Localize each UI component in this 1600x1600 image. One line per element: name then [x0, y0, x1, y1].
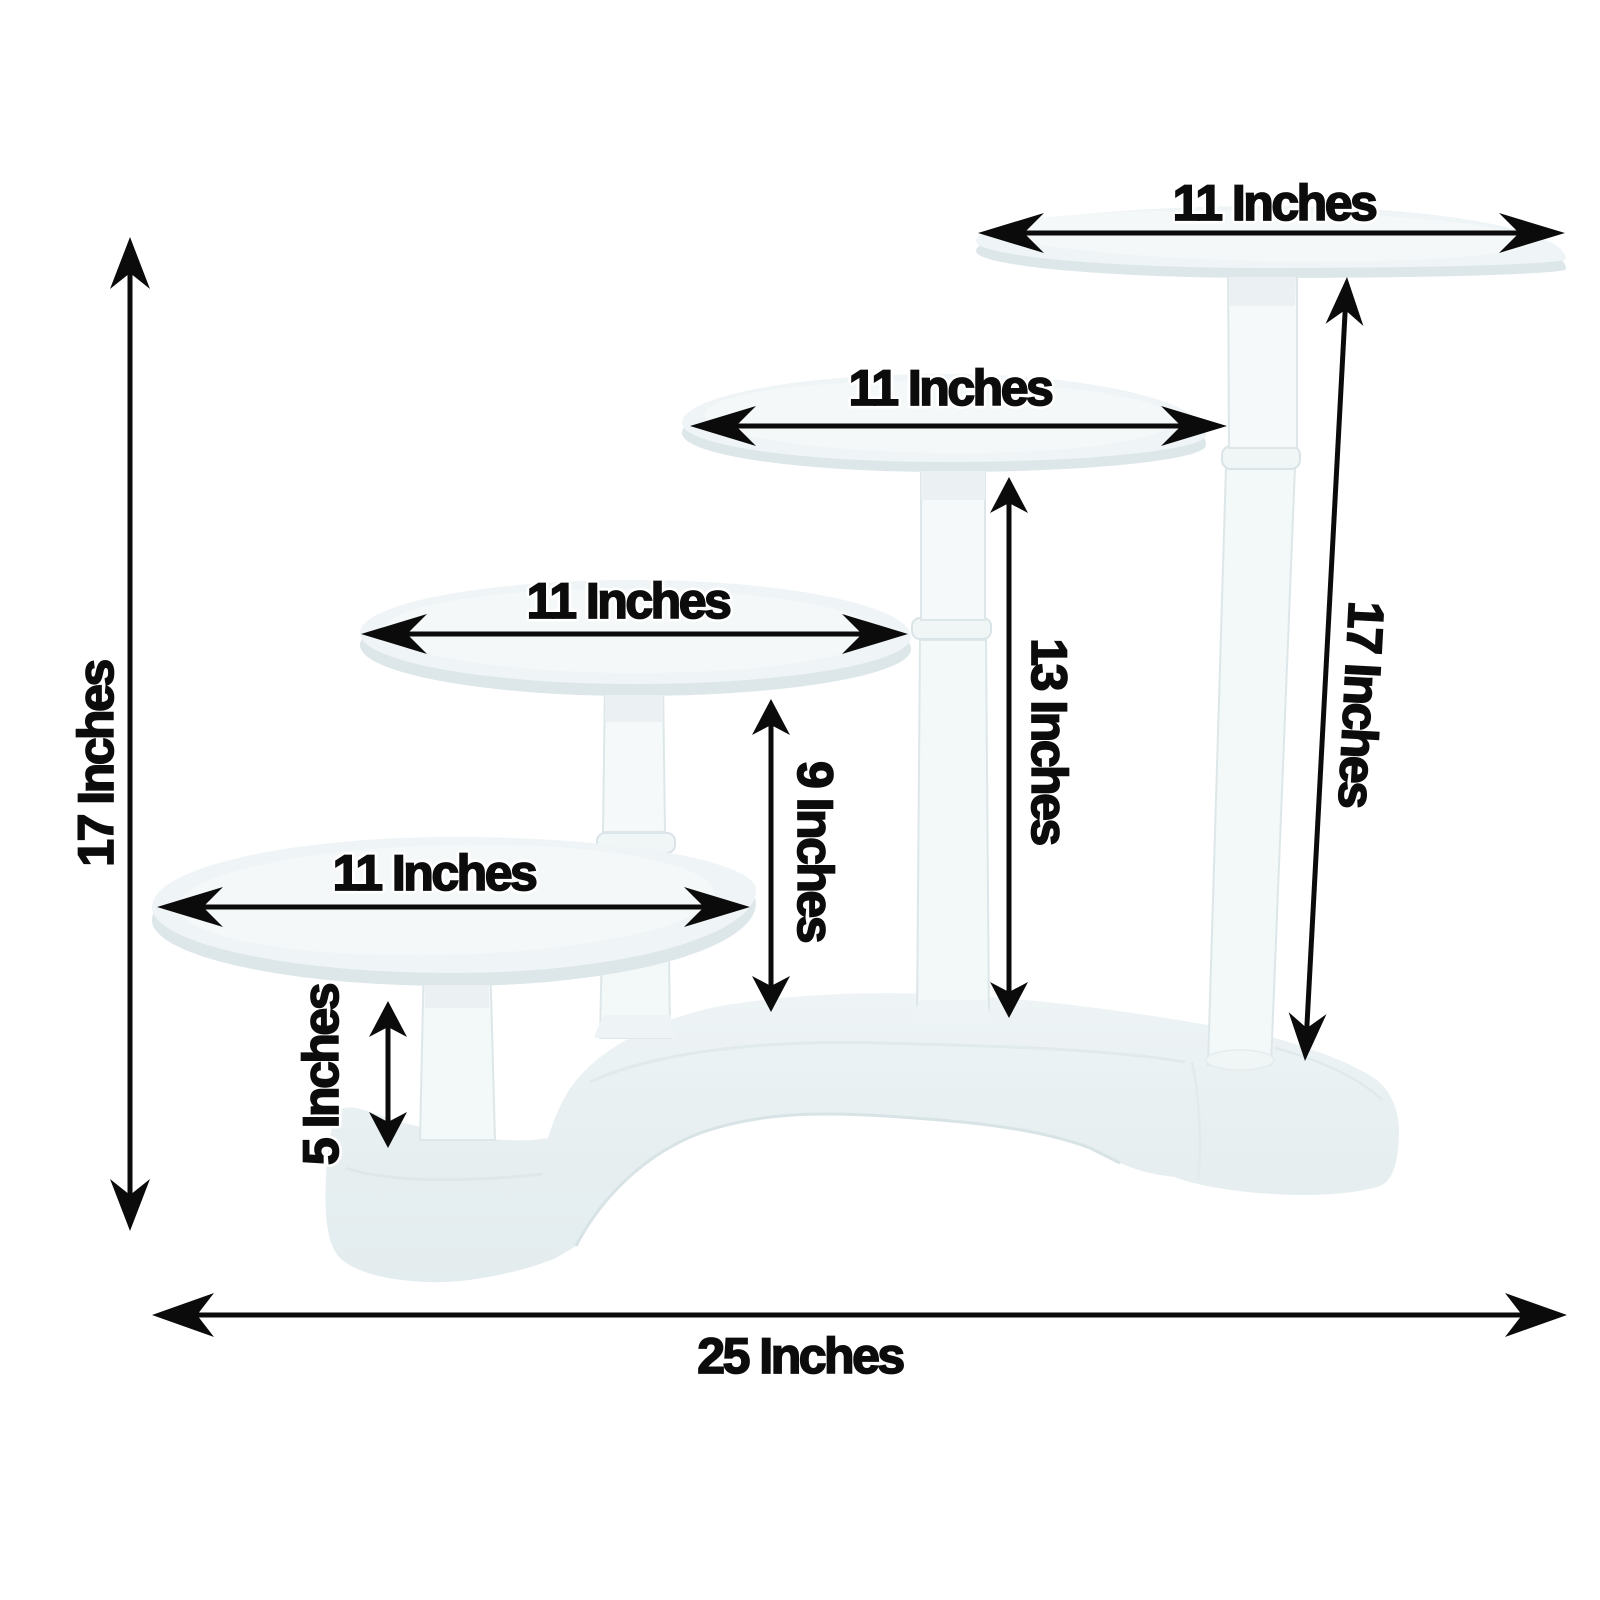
svg-text:17 Inches: 17 Inches	[68, 661, 124, 867]
svg-text:11 Inches: 11 Inches	[849, 360, 1052, 416]
svg-text:11 Inches: 11 Inches	[1173, 175, 1376, 231]
svg-text:9 Inches: 9 Inches	[787, 761, 843, 942]
svg-text:17 Inches: 17 Inches	[1328, 600, 1395, 809]
svg-text:5 Inches: 5 Inches	[293, 984, 349, 1165]
svg-text:13 Inches: 13 Inches	[1021, 638, 1077, 844]
svg-text:11 Inches: 11 Inches	[333, 845, 536, 901]
svg-text:25 Inches: 25 Inches	[697, 1328, 903, 1384]
svg-text:11 Inches: 11 Inches	[527, 573, 730, 629]
